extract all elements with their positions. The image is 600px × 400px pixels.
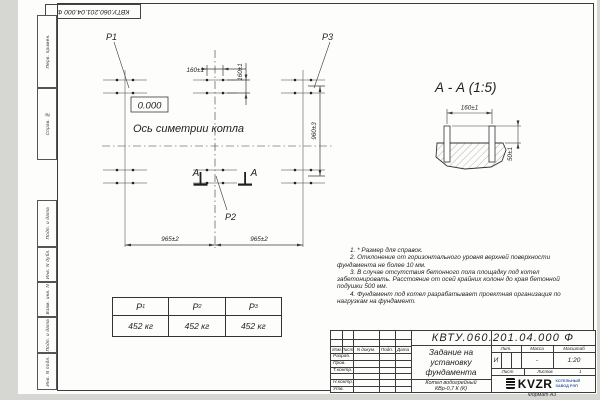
load-value: 452 кг [226, 316, 281, 336]
dim-160-vertical: 160±1 [237, 63, 244, 80]
sign-row-nkontr: Н.контр. [331, 380, 353, 385]
kvzr-logo-text: KVZR [518, 377, 553, 391]
scale-header: Масштаб [553, 345, 595, 352]
dim-160-horizontal: 160±1 [187, 67, 204, 74]
notes-block: 1. * Размер для справок. 2. Отклонение о… [337, 247, 587, 305]
lit-header: Лит. [491, 345, 521, 352]
section-letter-right: А [250, 168, 258, 179]
leader-p2 [216, 176, 227, 210]
sheet-label: Лист [491, 368, 524, 375]
load-point-p2-label: Р2 [225, 212, 236, 222]
doc-title-line: фундамента [426, 367, 477, 377]
doc-number: КВТУ.060.201.04.000 Ф [411, 331, 595, 345]
anchor-bolt-right [489, 126, 495, 162]
product-name: Котел водогрейный КВр-0,7 К (К) [411, 379, 491, 392]
margin-label: Перв. примен. [45, 34, 50, 68]
margin-label: Подп. и дата [45, 207, 50, 239]
company-cell: KVZR КОТЕЛЬНЫЙ ЗАВОД РЭП [491, 375, 595, 392]
section-title: А - А (1:5) [434, 80, 497, 95]
format-label: Формат А3 [490, 392, 594, 398]
load-sub: 3 [255, 304, 258, 310]
sign-row-razrab: Разраб. [331, 354, 353, 359]
margin-box-repl-inv: Взам. инв. N [37, 282, 57, 317]
note-3: 3. В случае отсутствия бетонного пола пл… [337, 269, 587, 291]
doc-title-line: Задание на [429, 347, 473, 357]
top-stamp-text: КВТУ.060.201.04.000 Ф [57, 8, 129, 15]
leader-p1 [114, 42, 129, 88]
kvzr-logo-icon [506, 378, 515, 389]
anchor-bolt-left [444, 126, 450, 162]
rev-header-date: Дата [395, 346, 411, 353]
section-view-a-a: А - А (1:5) 160±1 50±1 [425, 70, 580, 185]
load-sub: 1 [142, 304, 145, 310]
section-dim-50: 50±1 [507, 147, 514, 161]
sign-row-tkontr: Т.контр. [331, 368, 353, 373]
lit-value: И [491, 352, 501, 368]
margin-box-sign-date-1: Подп. и дата [37, 200, 57, 247]
margin-label: Справ. № [45, 112, 50, 135]
dim-965-right: 965±2 [250, 236, 268, 243]
load-table-column: Р3 452 кг [226, 298, 281, 336]
doc-title-line: установку [430, 357, 471, 367]
plan-view: Р1 Р3 Р2 160±1 160±1 960±3 965±2 965±2 0… [60, 25, 345, 265]
level-mark-value: 0.000 [138, 101, 162, 112]
margin-label: Инв. N подл. [45, 356, 50, 386]
top-rotated-stamp: КВТУ.060.201.04.000 Ф [45, 4, 141, 19]
sign-row-prov: Пров. [331, 361, 353, 366]
margin-label: Подп. и дата [45, 319, 50, 351]
rev-header-list: Лист [342, 346, 353, 353]
margin-label: Инв. N дубл. [45, 249, 50, 279]
margin-box-ref-number: Справ. № [37, 88, 57, 160]
dimension-arrows [125, 68, 321, 247]
product-line: КВр-0,7 К (К) [435, 386, 467, 392]
sheets-cell: Листов 1 [524, 368, 595, 375]
note-4: 4. Фундамент под котел разрабатывает про… [337, 291, 587, 306]
load-sub: 2 [198, 304, 201, 310]
mass-header: Масса [521, 345, 553, 352]
margin-box-inv-dupl: Инв. N дубл. [37, 247, 57, 282]
section-dim-160: 160±1 [461, 105, 478, 112]
mass-value: - [521, 352, 553, 368]
note-2: 2. Отклонение от горизонтального уровня … [337, 254, 587, 269]
dim-965-left: 965±2 [161, 236, 179, 243]
load-point-p3-label: Р3 [322, 32, 333, 42]
symmetry-axis-label: Ось симетрии котла [133, 123, 244, 135]
company-caption-line: ЗАВОД РЭП [555, 384, 577, 388]
load-value: 452 кг [169, 316, 224, 336]
margin-label: Взам. инв. N [45, 284, 50, 314]
sign-row-utv: Утв. [331, 387, 353, 392]
leader-p3 [314, 42, 330, 88]
load-point-p1-label: Р1 [106, 32, 117, 42]
margin-box-sign-date-2: Подп. и дата [37, 317, 57, 353]
title-block: Изм Лист N докум. Подп. Дата Разраб. Про… [330, 330, 596, 393]
load-table-column: Р1 452 кг [113, 298, 169, 336]
sheets-value: 1 [579, 369, 581, 374]
company-caption-line: КОТЕЛЬНЫЙ [555, 379, 580, 383]
drawing-sheet: КВТУ.060.201.04.000 Ф Перв. примен. Спра… [0, 0, 600, 400]
sheets-label: Листов [537, 369, 552, 374]
scale-value: 1:20 [553, 352, 595, 368]
doc-title: Задание на установку фундамента [411, 345, 491, 379]
margin-box-inv-orig: Инв. N подл. [37, 353, 57, 390]
rev-header-ndoc: N докум. [353, 346, 379, 353]
load-value: 452 кг [113, 316, 168, 336]
section-letter-left: А [192, 168, 200, 179]
load-table: Р1 452 кг Р2 452 кг Р3 452 кг [112, 297, 282, 337]
margin-box-first-use: Перв. примен. [37, 15, 57, 88]
load-table-column: Р2 452 кг [169, 298, 225, 336]
company-caption: КОТЕЛЬНЫЙ ЗАВОД РЭП [555, 379, 580, 388]
dim-960: 960±3 [311, 122, 318, 140]
rev-header-izm: Изм [331, 346, 342, 353]
rev-header-sign: Подп. [379, 346, 395, 353]
